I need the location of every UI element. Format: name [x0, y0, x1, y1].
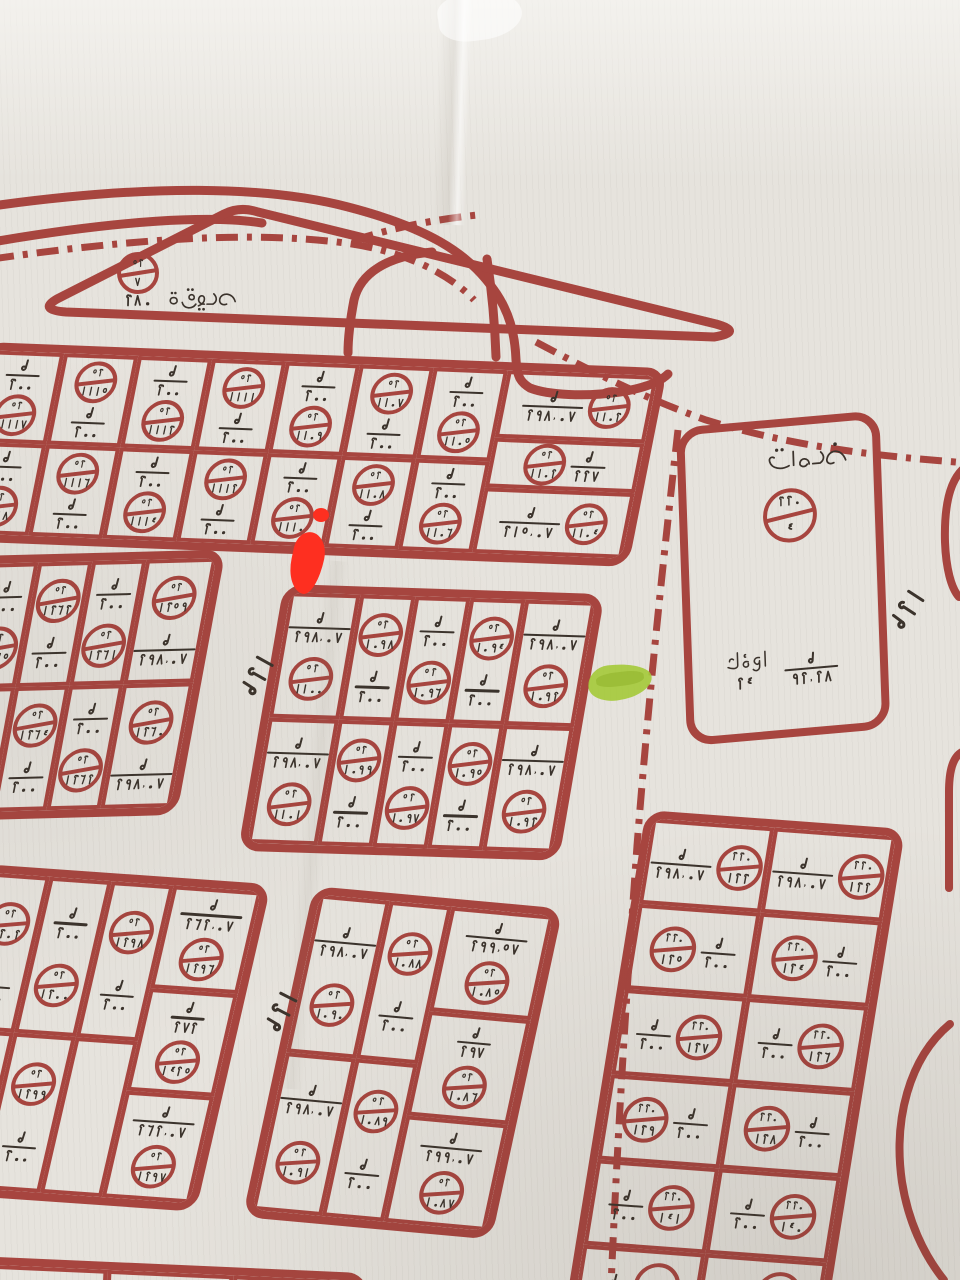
- fraction-bar: [354, 686, 389, 689]
- fraction-bar: [0, 465, 22, 469]
- plot-circle: [348, 463, 398, 506]
- number-run: [363, 639, 395, 650]
- plot-cell: [472, 487, 635, 558]
- area-label: [131, 632, 199, 667]
- fraction-bar: [5, 374, 40, 378]
- area-label: [28, 636, 69, 670]
- meem-unit-glyph: [112, 978, 126, 994]
- number-run: [18, 730, 50, 741]
- area-label: [568, 449, 609, 483]
- number-run: [38, 988, 70, 1000]
- area-label: [177, 897, 246, 934]
- number-run: [345, 1177, 374, 1192]
- fraction-bar: [200, 518, 235, 522]
- number-run: [0, 989, 6, 1003]
- meem-unit-glyph: [14, 1130, 28, 1146]
- number-run: [824, 965, 853, 979]
- number-run: [358, 1115, 390, 1128]
- block-row: [0, 558, 216, 689]
- fraction-bar: [348, 524, 383, 528]
- number-run: [459, 1072, 473, 1082]
- number-run: [525, 409, 577, 423]
- number-run: [86, 650, 118, 661]
- fraction-bar: [570, 465, 605, 469]
- area-label: [49, 497, 90, 531]
- plot-circle: [645, 1183, 698, 1232]
- number-run: [812, 1030, 833, 1041]
- area-label: [330, 795, 370, 829]
- number-run: [725, 872, 750, 885]
- meem-unit-glyph: [183, 1001, 197, 1017]
- number-run: [99, 630, 113, 639]
- number-run: [507, 816, 539, 827]
- number-run: [457, 1045, 486, 1060]
- area-label: [0, 704, 3, 738]
- number-run: [0, 928, 22, 940]
- plot-circle: [305, 981, 358, 1028]
- number-run: [572, 470, 601, 483]
- number-run: [528, 691, 560, 702]
- meem-unit-glyph: [583, 450, 597, 465]
- number-run: [637, 1103, 658, 1114]
- meem-unit-glyph: [159, 1105, 173, 1121]
- number-run: [445, 819, 474, 832]
- number-run: [569, 528, 600, 539]
- plot-circle: [766, 1192, 819, 1241]
- number-run: [306, 412, 320, 421]
- meem-unit-glyph: [213, 503, 227, 518]
- plot-circle: [53, 452, 103, 495]
- fraction-bar: [283, 477, 318, 481]
- number-run: [157, 602, 189, 613]
- plot-cell: [761, 827, 896, 921]
- number-run: [437, 1178, 451, 1188]
- number-run: [76, 755, 90, 764]
- number-run: [73, 460, 87, 469]
- meem-unit-glyph: [477, 674, 490, 689]
- number-run: [540, 450, 554, 459]
- circle-strike: [157, 1058, 199, 1065]
- number-run: [342, 764, 374, 775]
- meem-unit-glyph: [548, 389, 562, 404]
- fraction-bar: [502, 759, 564, 763]
- plot-circle: [794, 1022, 847, 1071]
- circle-strike: [110, 929, 152, 936]
- number-run: [527, 638, 579, 652]
- plot-cell: [705, 1168, 840, 1262]
- number-run: [52, 970, 67, 980]
- number-run: [284, 789, 298, 798]
- number-run: [0, 653, 10, 664]
- circle-strike: [0, 503, 17, 511]
- number-run: [219, 432, 248, 445]
- fraction-bar: [419, 630, 454, 633]
- note-word: [718, 647, 771, 680]
- circle-strike: [355, 1108, 397, 1114]
- meem-unit-glyph: [676, 847, 689, 863]
- plot-circle: [0, 485, 22, 528]
- number-run: [0, 510, 10, 521]
- area-label: [298, 369, 339, 403]
- number-run: [735, 676, 754, 691]
- number-run: [379, 1019, 408, 1034]
- number-run: [32, 656, 61, 669]
- area-label: [820, 944, 860, 979]
- number-run: [847, 881, 872, 894]
- meem-unit-glyph: [108, 577, 121, 592]
- fraction-bar: [31, 652, 66, 655]
- circle-strike: [132, 1163, 174, 1170]
- plot-circle: [444, 741, 496, 786]
- plot-circle: [630, 1262, 683, 1280]
- plot-circle: [32, 578, 84, 623]
- meem-unit-glyph: [44, 636, 57, 651]
- number-run: [173, 1046, 188, 1056]
- meem-unit-glyph: [525, 506, 539, 521]
- number-run: [732, 1216, 761, 1230]
- meem-unit-glyph: [137, 758, 150, 773]
- meem-unit-glyph: [293, 736, 306, 751]
- number-run: [61, 477, 92, 488]
- meem-unit-glyph: [361, 509, 375, 524]
- circle-strike: [649, 1204, 693, 1211]
- meem-unit-glyph: [461, 375, 475, 390]
- circle-strike: [471, 634, 513, 643]
- plot-circle: [55, 748, 107, 793]
- number-run: [886, 583, 930, 635]
- meem-unit-glyph: [807, 1115, 820, 1131]
- plot-circle: [334, 738, 386, 783]
- plot-cell: [625, 904, 760, 998]
- fraction-bar: [398, 755, 433, 758]
- plot-circle: [125, 700, 177, 745]
- area-label: [770, 854, 837, 891]
- number-run: [0, 419, 28, 430]
- plot-circle: [415, 502, 465, 545]
- meem-unit-glyph: [340, 926, 354, 942]
- circle-strike: [12, 1081, 54, 1088]
- area-label: [417, 614, 457, 648]
- block-row: [0, 442, 490, 553]
- number-run: [135, 1170, 167, 1182]
- circle-strike: [840, 873, 884, 880]
- area-label: [129, 1103, 198, 1140]
- number-run: [759, 1046, 788, 1060]
- number-run: [690, 1021, 711, 1032]
- area-label: [197, 503, 238, 537]
- plot-circle: [117, 252, 159, 294]
- number-run: [54, 926, 83, 940]
- number-run: [209, 483, 240, 494]
- circle-strike: [277, 1160, 319, 1166]
- area-label: [280, 461, 321, 495]
- circle-strike: [421, 1190, 463, 1196]
- meem-unit-glyph: [306, 1083, 320, 1099]
- circle-strike: [773, 955, 817, 962]
- plot-circle: [355, 612, 407, 657]
- number-run: [196, 944, 211, 954]
- number-run: [371, 1096, 385, 1106]
- area-label: [108, 757, 176, 792]
- area-label: [441, 799, 481, 833]
- number-run: [183, 917, 236, 933]
- number-run: [146, 707, 160, 716]
- plot-circle: [148, 575, 200, 620]
- plot-circle: [498, 789, 550, 834]
- number-run: [293, 430, 324, 441]
- area-label: [352, 670, 392, 704]
- plot-circle: [561, 503, 611, 546]
- number-run: [146, 424, 177, 435]
- circle-strike: [76, 378, 116, 386]
- circle-strike: [0, 921, 29, 928]
- plot-circle: [78, 623, 130, 668]
- meem-unit-glyph: [443, 467, 457, 482]
- meem-unit-glyph: [18, 358, 32, 373]
- meem-unit-glyph: [770, 1026, 783, 1042]
- plot-circle: [768, 934, 821, 983]
- number-run: [784, 1200, 805, 1211]
- number-run: [423, 1149, 476, 1166]
- plot-cell: [429, 907, 553, 1021]
- meem-unit-glyph: [648, 1017, 661, 1033]
- area-label: [446, 375, 487, 409]
- meem-unit-glyph: [345, 796, 358, 811]
- number-run: [662, 1191, 683, 1202]
- fraction-bar: [8, 776, 43, 779]
- services-note: [718, 641, 839, 693]
- area-label: [167, 1000, 209, 1035]
- meem-unit-glyph: [806, 650, 817, 666]
- number-run: [275, 521, 306, 532]
- fraction-bar: [449, 391, 484, 395]
- number-run: [114, 778, 166, 792]
- meem-unit-glyph: [65, 497, 79, 512]
- number-run: [592, 411, 623, 422]
- plot-cell: [611, 989, 746, 1083]
- number-run: [452, 768, 484, 779]
- area-label: [50, 906, 92, 941]
- number-run: [63, 774, 95, 785]
- plot-cell: [747, 913, 882, 1007]
- plot-circle: [349, 1088, 402, 1135]
- plot-cell: [597, 1074, 732, 1168]
- plot-circle: [520, 443, 570, 486]
- number-run: [631, 1124, 656, 1137]
- circle-strike: [360, 630, 402, 639]
- number-run: [317, 944, 370, 961]
- circle-strike: [407, 679, 449, 688]
- area-label: [698, 935, 738, 970]
- number-run: [684, 1042, 709, 1055]
- meem-unit-glyph: [686, 1106, 699, 1122]
- number-run: [132, 259, 144, 267]
- number-run: [638, 1037, 667, 1051]
- block-row: [247, 718, 574, 853]
- number-run: [465, 749, 479, 758]
- meem-unit-glyph: [21, 761, 34, 776]
- area-label: [93, 577, 134, 611]
- circle-strike: [389, 951, 431, 957]
- number-run: [30, 710, 44, 719]
- circle-strike: [525, 682, 567, 691]
- number-run: [113, 936, 145, 948]
- area-label: [215, 411, 256, 445]
- plot-circle: [672, 1013, 725, 1062]
- plot-circle: [201, 458, 251, 501]
- fraction-bar: [0, 985, 11, 990]
- area-label: [0, 580, 26, 614]
- plot-circle: [415, 1169, 468, 1216]
- area-label: [792, 1114, 832, 1149]
- number-run: [288, 504, 302, 513]
- block-mid-left: [0, 550, 226, 822]
- number-run: [702, 956, 731, 970]
- plot-cell: [495, 370, 658, 443]
- number-run: [374, 397, 405, 408]
- number-run: [519, 797, 533, 806]
- area-label: [5, 760, 46, 794]
- meem-unit-glyph: [432, 614, 445, 629]
- circle-strike: [449, 759, 491, 768]
- meem-unit-glyph: [713, 936, 726, 952]
- fraction-bar: [443, 815, 478, 818]
- number-run: [284, 481, 313, 494]
- circle-strike: [624, 1116, 668, 1123]
- plot-circle: [402, 660, 454, 705]
- red-marker-dot: [313, 508, 329, 522]
- area-label: [150, 364, 191, 398]
- number-run: [675, 1126, 704, 1140]
- number-run: [605, 394, 619, 403]
- number-run: [541, 671, 555, 680]
- meem-unit-glyph: [85, 702, 98, 717]
- area-label: [784, 648, 839, 686]
- plot-circle: [29, 962, 83, 1008]
- block-mid-center: [238, 584, 605, 861]
- number-run: [659, 953, 684, 966]
- circle-strike: [143, 417, 183, 425]
- plot-circle: [138, 399, 188, 442]
- plot-circle: [433, 411, 483, 454]
- plot-cell: [719, 1083, 854, 1177]
- fraction-bar: [96, 593, 131, 596]
- plot-circle: [0, 901, 35, 947]
- number-run: [796, 1135, 825, 1149]
- area-label: [0, 449, 25, 483]
- number-run: [15, 1088, 47, 1100]
- number-run: [468, 940, 521, 957]
- meem-unit-glyph: [148, 456, 162, 471]
- number-run: [137, 653, 189, 667]
- plot-circle: [285, 405, 335, 448]
- number-run: [100, 998, 129, 1012]
- number-run: [0, 633, 5, 642]
- number-run: [753, 1133, 778, 1146]
- number-run: [302, 390, 331, 403]
- number-run: [664, 933, 685, 944]
- circle-strike: [338, 756, 380, 765]
- circle-strike: [291, 423, 331, 431]
- circle-strike: [466, 980, 508, 986]
- number-run: [528, 468, 559, 479]
- number-run: [53, 517, 82, 530]
- circle-strike: [354, 481, 394, 489]
- meem-unit-glyph: [83, 406, 97, 421]
- meem-unit-glyph: [66, 907, 80, 923]
- plot-circle: [381, 786, 433, 831]
- plot-circle: [271, 1139, 324, 1186]
- fraction-bar: [431, 482, 466, 486]
- area-label: [345, 508, 386, 542]
- plot-circle: [174, 936, 228, 982]
- number-run: [124, 294, 152, 307]
- street-width-label: [886, 583, 930, 635]
- plot-circle: [219, 366, 269, 409]
- plot-circle: [584, 386, 634, 429]
- number-run: [389, 812, 421, 823]
- block-row: [0, 682, 193, 813]
- number-run: [74, 722, 103, 735]
- area-label: [375, 999, 417, 1035]
- fraction-bar: [134, 648, 196, 652]
- circle-strike: [443, 1084, 485, 1090]
- number-run: [158, 407, 172, 416]
- number-run: [3, 909, 18, 919]
- circle-strike: [372, 390, 412, 398]
- area-label: [519, 388, 587, 423]
- photographed-plot-map: [0, 0, 960, 1280]
- fraction-bar: [153, 380, 188, 384]
- number-run: [454, 418, 468, 427]
- number-run: [227, 391, 258, 402]
- number-run: [505, 763, 557, 777]
- meem-unit-glyph: [607, 1272, 620, 1280]
- number-run: [778, 494, 801, 507]
- number-run: [10, 401, 24, 410]
- meem-unit-glyph: [550, 618, 563, 633]
- number-run: [436, 509, 450, 518]
- number-run: [469, 986, 501, 999]
- plot-circle: [9, 703, 61, 748]
- fraction-bar: [524, 633, 586, 637]
- circle-strike: [567, 520, 607, 528]
- number-run: [239, 374, 253, 383]
- meem-unit-glyph: [0, 580, 13, 595]
- number-run: [441, 436, 472, 447]
- plot-circle: [383, 930, 436, 977]
- circle-strike: [764, 507, 816, 523]
- number-run: [79, 386, 110, 397]
- meem-unit-glyph: [743, 1197, 756, 1213]
- number-run: [171, 1020, 200, 1034]
- fraction-bar: [135, 471, 170, 475]
- area-label: [606, 1187, 646, 1222]
- meem-unit-glyph: [492, 922, 506, 938]
- plot-cell: [384, 1115, 509, 1231]
- plot-circle: [740, 1104, 793, 1153]
- number-run: [354, 745, 368, 754]
- fraction-bar: [73, 718, 108, 721]
- area-label: [634, 1017, 674, 1052]
- number-run: [502, 525, 554, 539]
- number-run: [0, 470, 17, 483]
- number-run: [201, 523, 230, 536]
- meem-unit-glyph: [469, 1026, 483, 1042]
- plot-circle: [520, 664, 572, 709]
- area-label: [132, 455, 173, 489]
- services-block: [676, 410, 890, 746]
